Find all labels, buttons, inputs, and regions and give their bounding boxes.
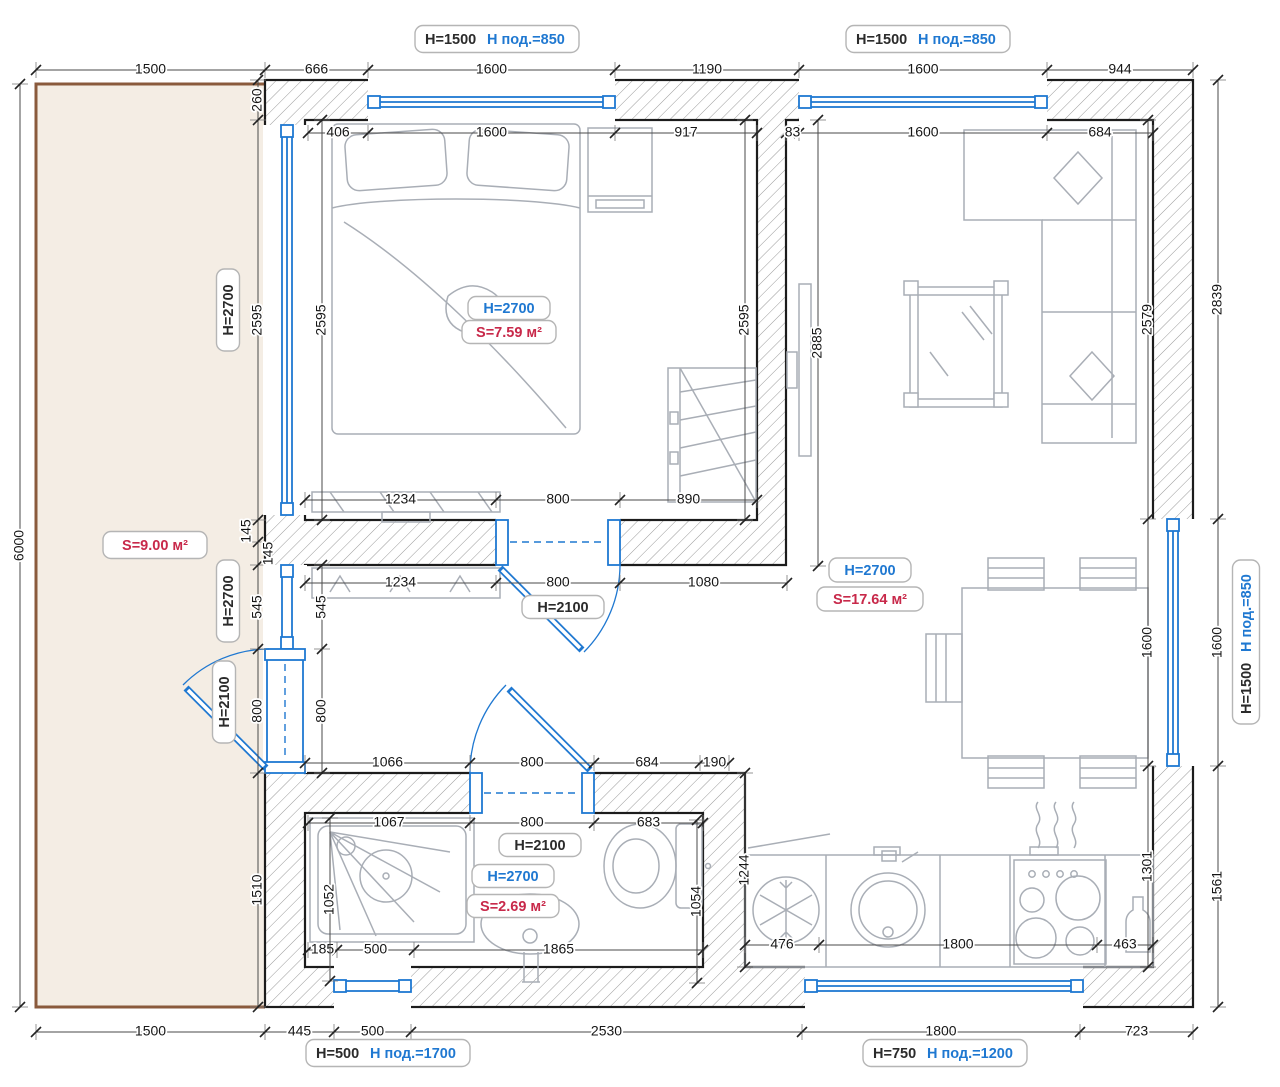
label-glazing-hall: H=2700 bbox=[217, 560, 240, 642]
shower bbox=[310, 818, 474, 942]
dim-label: 83 bbox=[785, 124, 801, 140]
dim-label: 917 bbox=[674, 124, 698, 140]
dim-label: 545 bbox=[313, 595, 329, 619]
dim-label: 1301 bbox=[1139, 851, 1155, 882]
dim-label: 1600 bbox=[476, 61, 507, 77]
dim-label: 260 bbox=[249, 88, 265, 112]
dim-label: 190 bbox=[703, 754, 727, 770]
area-label: S=17.64 м² bbox=[833, 592, 907, 608]
dim-label: 1600 bbox=[1209, 627, 1225, 658]
window-bath bbox=[334, 980, 411, 992]
mirror-table bbox=[904, 281, 1008, 407]
window-kitchen bbox=[805, 980, 1083, 992]
dim-label: 1600 bbox=[476, 124, 507, 140]
walls bbox=[265, 80, 1193, 1007]
floor-plan-page: 1500666160011901600944406160091783160068… bbox=[0, 0, 1280, 1087]
floor-plan-svg: 1500666160011901600944406160091783160068… bbox=[0, 0, 1280, 1087]
dim-label: 500 bbox=[361, 1023, 385, 1039]
window-top-bedroom bbox=[368, 96, 615, 108]
sofa-pillow bbox=[1054, 152, 1102, 204]
door-height-label: H=2100 bbox=[514, 838, 565, 854]
dim-label: 1054 bbox=[688, 886, 704, 917]
window-sill-label: Н под.=850 bbox=[918, 32, 996, 48]
dim-label: 2579 bbox=[1139, 304, 1155, 335]
dim-label: 1190 bbox=[692, 61, 722, 77]
nightstand bbox=[588, 128, 652, 212]
dim-label: 476 bbox=[770, 936, 794, 952]
height-label: H=2700 bbox=[221, 575, 237, 626]
height-label: H=2700 bbox=[221, 284, 237, 335]
window-height-label: H=1500 bbox=[1239, 663, 1255, 714]
dim-label: 1561 bbox=[1209, 871, 1225, 902]
dim-label: 683 bbox=[637, 814, 661, 830]
dim-label: 2595 bbox=[736, 304, 752, 335]
window-sill-label: Н под.=850 bbox=[1239, 574, 1255, 652]
dim-label: 2595 bbox=[249, 304, 265, 335]
dim-label: 1500 bbox=[135, 1023, 166, 1039]
dim-label: 2530 bbox=[591, 1023, 622, 1039]
sofa-pillow bbox=[1070, 352, 1114, 400]
dim-label: 1067 bbox=[373, 814, 404, 830]
height-label: H=2700 bbox=[844, 563, 895, 579]
dining-table bbox=[962, 588, 1148, 758]
label-bath-door-height: H=2100 bbox=[499, 834, 581, 857]
dim-label: 684 bbox=[1088, 124, 1112, 140]
window-height-label: H=1500 bbox=[856, 32, 907, 48]
area-label: S=2.69 м² bbox=[480, 899, 546, 915]
dim-label: 2839 bbox=[1209, 284, 1225, 315]
steam-icon bbox=[1036, 802, 1075, 848]
dim-label: 1080 bbox=[688, 574, 719, 590]
label-living-height: H=2700 bbox=[829, 558, 911, 582]
height-label: H=2700 bbox=[483, 301, 534, 317]
dim-label: 800 bbox=[546, 574, 570, 590]
dim-label: 723 bbox=[1125, 1023, 1149, 1039]
door-height-label: H=2100 bbox=[537, 600, 588, 616]
label-terrace-area: S=9.00 м² bbox=[103, 532, 207, 559]
window-sill-label: Н под.=1200 bbox=[927, 1046, 1013, 1062]
dining-set bbox=[926, 558, 1148, 788]
label-living-area: S=17.64 м² bbox=[817, 587, 923, 611]
area-label: S=9.00 м² bbox=[122, 538, 188, 554]
chair bbox=[1080, 558, 1136, 590]
window-sill-label: Н под.=850 bbox=[487, 32, 565, 48]
pillow bbox=[344, 129, 448, 192]
dim-label: 500 bbox=[364, 941, 388, 957]
dim-label: 2885 bbox=[809, 327, 825, 358]
counter-flap bbox=[748, 834, 830, 848]
dim-label: 800 bbox=[520, 754, 544, 770]
dim-label: 1500 bbox=[135, 61, 166, 77]
dim-label: 944 bbox=[1108, 61, 1132, 77]
dim-label: 1244 bbox=[736, 854, 752, 885]
label-window-top-living: H=1500 Н под.=850 bbox=[846, 26, 1010, 53]
dresser bbox=[668, 368, 756, 502]
chair bbox=[988, 558, 1044, 590]
label-window-top-bedroom: H=1500 Н под.=850 bbox=[415, 26, 579, 53]
dim-label: 545 bbox=[249, 595, 265, 619]
label-entry-door: H=2100 bbox=[213, 661, 236, 743]
window-height-label: H=750 bbox=[873, 1046, 916, 1062]
height-label: H=2700 bbox=[487, 869, 538, 885]
chair bbox=[1080, 756, 1136, 788]
dim-label: 1066 bbox=[372, 754, 403, 770]
label-hall-door-height: H=2100 bbox=[522, 596, 604, 619]
dim-label: 1234 bbox=[385, 491, 416, 507]
dim-label: 800 bbox=[313, 699, 329, 723]
dim-label: 406 bbox=[326, 124, 350, 140]
dim-label: 145 bbox=[260, 542, 276, 566]
glazing-hall-left bbox=[281, 565, 293, 649]
bed bbox=[332, 124, 580, 434]
window-height-label: H=500 bbox=[316, 1046, 359, 1062]
dim-label: 1234 bbox=[385, 574, 416, 590]
window-sill-label: Н под.=1700 bbox=[370, 1046, 456, 1062]
dim-label: 800 bbox=[249, 699, 265, 723]
label-bedroom-area: S=7.59 м² bbox=[462, 321, 556, 344]
stove bbox=[1014, 860, 1106, 964]
dim-label: 1052 bbox=[321, 884, 337, 915]
label-window-right: H=1500 Н под.=850 bbox=[1233, 560, 1260, 724]
dim-label: 145 bbox=[238, 519, 254, 543]
dim-label: 1800 bbox=[925, 1023, 956, 1039]
label-window-kitchen: H=750 Н под.=1200 bbox=[863, 1040, 1027, 1067]
kitchen-sink bbox=[851, 851, 925, 947]
dim-label: 666 bbox=[305, 61, 329, 77]
label-bath-height: H=2700 bbox=[472, 865, 554, 888]
dim-label: 1510 bbox=[249, 874, 265, 905]
door-height-label: H=2100 bbox=[217, 676, 233, 727]
glazing-bedroom-left bbox=[281, 125, 293, 515]
dim-label: 6000 bbox=[11, 530, 27, 561]
tv bbox=[787, 284, 811, 456]
dim-label: 800 bbox=[546, 491, 570, 507]
label-glazing-bedroom: H=2700 bbox=[217, 269, 240, 351]
label-window-bath: H=500 Н под.=1700 bbox=[306, 1040, 470, 1067]
armchair bbox=[926, 634, 962, 702]
chair bbox=[988, 756, 1044, 788]
window-right bbox=[1167, 519, 1179, 766]
dim-label: 445 bbox=[288, 1023, 312, 1039]
dim-label: 800 bbox=[520, 814, 544, 830]
dim-label: 1600 bbox=[1139, 627, 1155, 658]
label-bath-area: S=2.69 м² bbox=[467, 895, 559, 918]
dim-label: 1600 bbox=[907, 61, 938, 77]
area-label: S=7.59 м² bbox=[476, 325, 542, 341]
fridge-snowflake-icon bbox=[753, 877, 819, 943]
dim-label: 2595 bbox=[313, 304, 329, 335]
dim-label: 684 bbox=[635, 754, 659, 770]
dim-label: 1800 bbox=[942, 936, 973, 952]
window-height-label: H=1500 bbox=[425, 32, 476, 48]
dim-label: 1865 bbox=[543, 941, 574, 957]
dim-label: 890 bbox=[677, 491, 701, 507]
dim-label: 185 bbox=[311, 941, 335, 957]
window-top-living bbox=[799, 96, 1047, 108]
dim-label: 1600 bbox=[907, 124, 938, 140]
label-bedroom-height: H=2700 bbox=[468, 297, 550, 320]
dim-label: 463 bbox=[1113, 936, 1137, 952]
